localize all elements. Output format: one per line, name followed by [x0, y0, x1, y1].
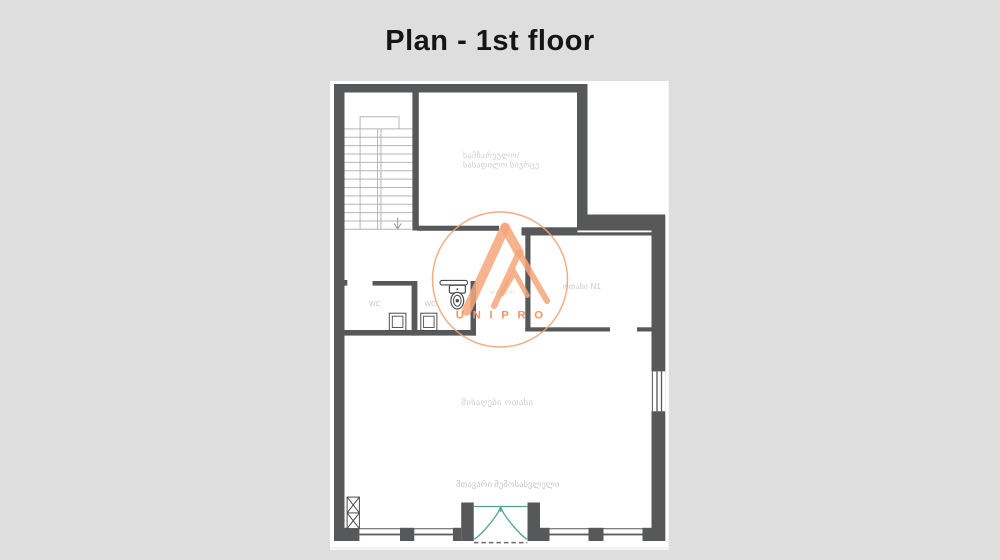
svg-text:WC: WC [369, 301, 381, 308]
svg-text:WC: WC [425, 301, 437, 308]
svg-text:ოთახი N1: ოთახი N1 [563, 282, 602, 291]
svg-text:მთავარი შემოსასვლელი: მთავარი შემოსასვლელი [456, 479, 559, 489]
svg-text:სასადილო სივრცე: სასადილო სივრცე [463, 161, 539, 170]
svg-text:სამზარეულო/: სამზარეულო/ [463, 151, 520, 160]
svg-text:UNIPRO: UNIPRO [456, 309, 552, 321]
svg-text:მისაღები ოთახი: მისაღები ოთახი [462, 397, 534, 407]
